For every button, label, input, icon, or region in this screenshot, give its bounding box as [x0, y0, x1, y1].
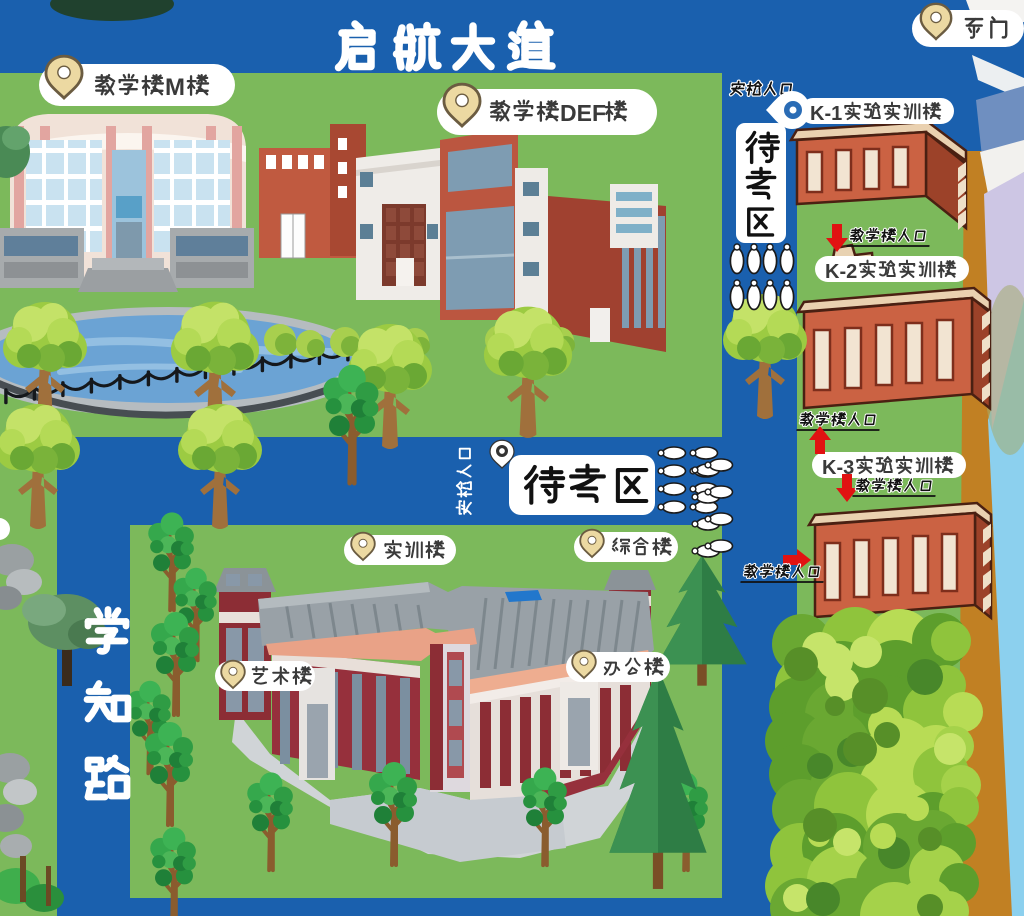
svg-text:M: M — [165, 74, 185, 101]
svg-text:K-2: K-2 — [825, 261, 857, 283]
svg-text:DEF: DEF — [560, 100, 606, 126]
svg-text:K-1: K-1 — [810, 103, 842, 125]
